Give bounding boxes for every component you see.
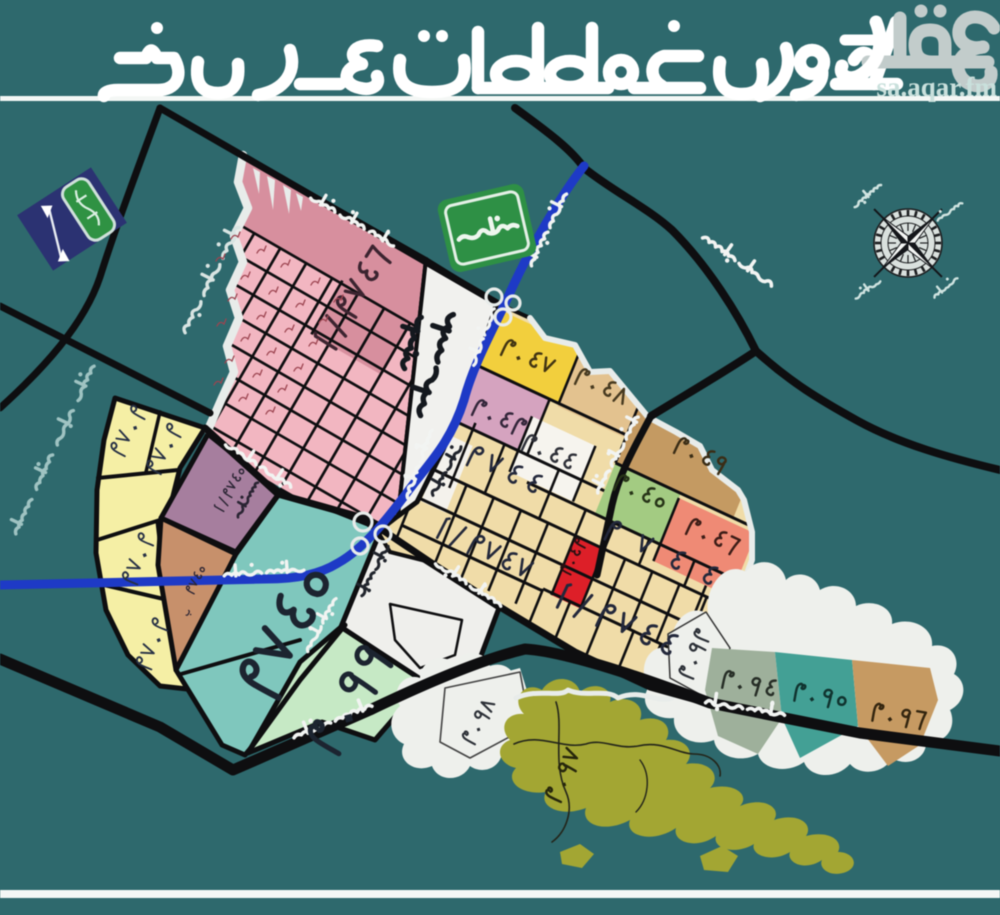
svg-text:sa.aqar.fm: sa.aqar.fm <box>876 72 997 102</box>
